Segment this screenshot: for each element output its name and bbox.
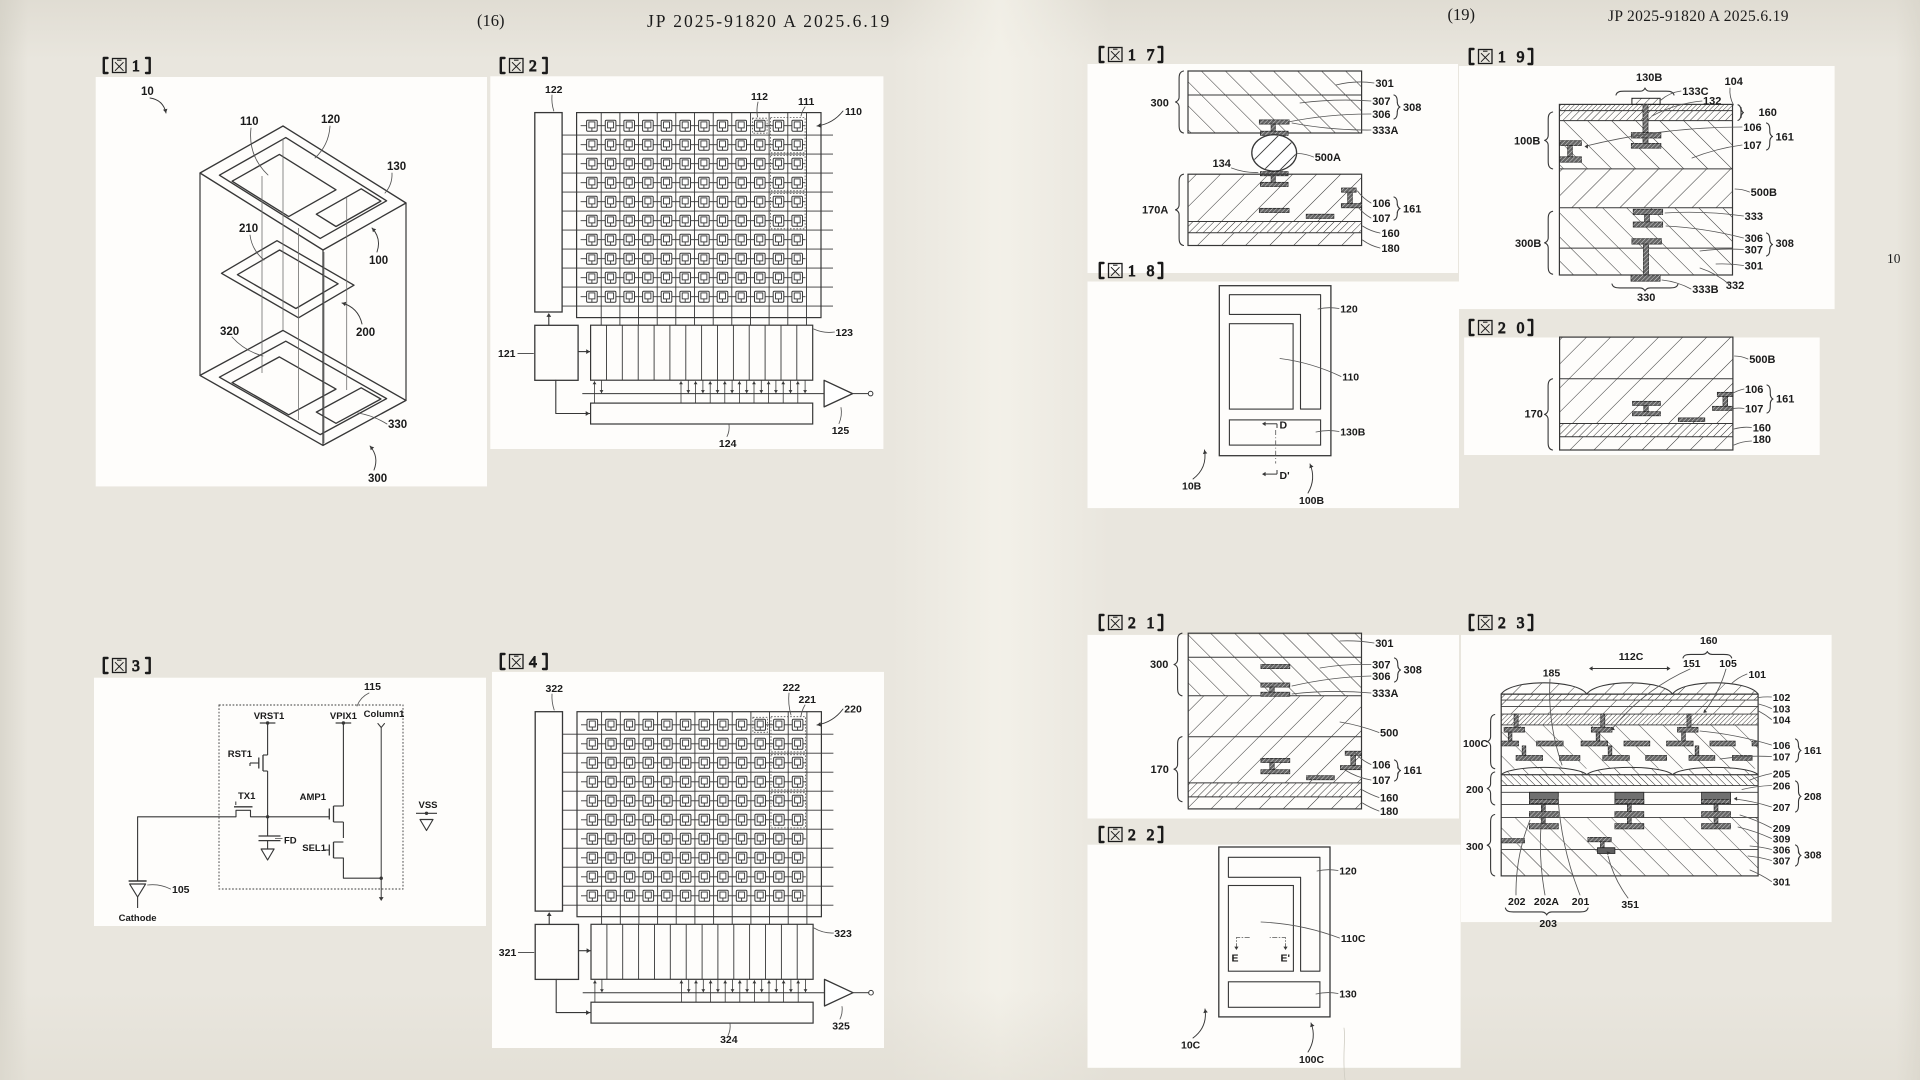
svg-text:100B: 100B bbox=[1514, 136, 1540, 148]
svg-text:301: 301 bbox=[1745, 261, 1763, 273]
svg-text:320: 320 bbox=[220, 326, 239, 338]
svg-text:322: 322 bbox=[546, 683, 564, 695]
svg-text:4: 4 bbox=[529, 654, 540, 671]
svg-text:185: 185 bbox=[1543, 668, 1561, 680]
svg-text:301: 301 bbox=[1773, 877, 1791, 889]
svg-text:2 1: 2 1 bbox=[1128, 615, 1158, 632]
svg-text:1 7: 1 7 bbox=[1128, 47, 1158, 64]
svg-text:200: 200 bbox=[356, 327, 375, 339]
svg-text:203: 203 bbox=[1539, 918, 1557, 930]
svg-text:300: 300 bbox=[1151, 98, 1169, 110]
svg-text:210: 210 bbox=[239, 223, 258, 235]
svg-text:2 0: 2 0 bbox=[1498, 320, 1528, 337]
svg-text:10C: 10C bbox=[1181, 1040, 1201, 1052]
svg-text:308: 308 bbox=[1804, 850, 1822, 862]
svg-text:201: 201 bbox=[1572, 896, 1590, 908]
svg-text:306: 306 bbox=[1745, 233, 1763, 245]
svg-text:(16): (16) bbox=[477, 11, 505, 30]
svg-text:106: 106 bbox=[1743, 122, 1761, 134]
svg-text:Column1: Column1 bbox=[364, 709, 405, 720]
svg-text:300: 300 bbox=[1466, 841, 1484, 853]
svg-text:161: 161 bbox=[1403, 204, 1421, 216]
svg-text:307: 307 bbox=[1372, 96, 1390, 108]
svg-text:321: 321 bbox=[499, 947, 517, 959]
svg-text:200: 200 bbox=[1466, 784, 1484, 796]
svg-text:10B: 10B bbox=[1182, 481, 1202, 493]
svg-text:110: 110 bbox=[240, 116, 259, 128]
svg-text:170: 170 bbox=[1151, 764, 1169, 776]
svg-text:130B: 130B bbox=[1636, 72, 1662, 84]
svg-text:180: 180 bbox=[1753, 434, 1771, 446]
svg-text:1 8: 1 8 bbox=[1128, 263, 1158, 280]
svg-text:333B: 333B bbox=[1692, 284, 1718, 296]
svg-text:160: 160 bbox=[1380, 793, 1398, 805]
svg-text:106: 106 bbox=[1745, 384, 1763, 396]
svg-text:102: 102 bbox=[1773, 692, 1791, 704]
svg-text:330: 330 bbox=[388, 419, 407, 431]
svg-text:Cathode: Cathode bbox=[119, 913, 157, 924]
svg-text:2 2: 2 2 bbox=[1128, 827, 1158, 844]
svg-text:100C: 100C bbox=[1299, 1054, 1325, 1066]
svg-text:220: 220 bbox=[844, 704, 862, 716]
svg-text:301: 301 bbox=[1375, 78, 1393, 90]
svg-text:300: 300 bbox=[368, 473, 387, 485]
svg-text:107: 107 bbox=[1745, 404, 1763, 416]
svg-text:306: 306 bbox=[1372, 671, 1390, 683]
svg-text:FD: FD bbox=[284, 836, 297, 847]
svg-text:500: 500 bbox=[1380, 728, 1398, 740]
svg-text:111: 111 bbox=[798, 96, 815, 108]
svg-text:120: 120 bbox=[1340, 304, 1358, 316]
svg-text:222: 222 bbox=[783, 682, 801, 694]
svg-text:125: 125 bbox=[832, 425, 850, 437]
svg-text:160: 160 bbox=[1381, 228, 1399, 240]
svg-text:1 9: 1 9 bbox=[1498, 49, 1528, 66]
svg-text:351: 351 bbox=[1621, 899, 1639, 911]
svg-text:122: 122 bbox=[545, 84, 563, 96]
svg-text:205: 205 bbox=[1773, 769, 1791, 781]
svg-text:161: 161 bbox=[1776, 132, 1794, 144]
svg-text:112C: 112C bbox=[1619, 651, 1644, 663]
svg-text:330: 330 bbox=[1637, 292, 1655, 304]
svg-text:160: 160 bbox=[1759, 107, 1777, 119]
svg-text:120: 120 bbox=[1339, 866, 1357, 878]
svg-text:300B: 300B bbox=[1515, 238, 1541, 250]
svg-text:323: 323 bbox=[834, 928, 852, 940]
svg-text:120: 120 bbox=[321, 114, 340, 126]
svg-text:333: 333 bbox=[1745, 211, 1763, 223]
svg-text:301: 301 bbox=[1375, 638, 1393, 650]
svg-text:112: 112 bbox=[751, 91, 768, 103]
svg-text:332: 332 bbox=[1726, 280, 1744, 292]
svg-text:110C: 110C bbox=[1341, 933, 1366, 945]
svg-text:RST1: RST1 bbox=[228, 749, 253, 760]
svg-text:AMP1: AMP1 bbox=[300, 792, 327, 803]
svg-text:1: 1 bbox=[132, 58, 143, 75]
svg-text:202A: 202A bbox=[1534, 896, 1560, 908]
svg-text:500B: 500B bbox=[1751, 187, 1777, 199]
svg-text:104: 104 bbox=[1725, 76, 1744, 88]
svg-text:180: 180 bbox=[1381, 243, 1399, 255]
svg-text:JP 2025-91820 A 2025.6.19: JP 2025-91820 A 2025.6.19 bbox=[1608, 8, 1789, 25]
svg-text:206: 206 bbox=[1773, 781, 1791, 793]
svg-text:161: 161 bbox=[1804, 745, 1822, 757]
svg-text:300: 300 bbox=[1150, 659, 1168, 671]
svg-text:115: 115 bbox=[364, 681, 381, 693]
svg-text:105: 105 bbox=[1719, 658, 1737, 670]
svg-text:106: 106 bbox=[1372, 198, 1390, 210]
svg-text:130B: 130B bbox=[1340, 427, 1366, 439]
svg-text:E': E' bbox=[1281, 953, 1291, 965]
svg-text:221: 221 bbox=[799, 694, 817, 706]
svg-text:JP 2025-91820 A 2025.6.19: JP 2025-91820 A 2025.6.19 bbox=[647, 11, 891, 31]
svg-text:105: 105 bbox=[172, 884, 190, 896]
svg-text:124: 124 bbox=[719, 438, 737, 450]
svg-text:106: 106 bbox=[1773, 740, 1791, 752]
svg-text:D: D bbox=[1280, 420, 1288, 432]
svg-text:TX1: TX1 bbox=[238, 791, 256, 802]
svg-text:500B: 500B bbox=[1749, 354, 1775, 366]
svg-text:130: 130 bbox=[387, 161, 406, 173]
svg-text:325: 325 bbox=[832, 1021, 850, 1033]
svg-text:101: 101 bbox=[1749, 669, 1767, 681]
svg-text:161: 161 bbox=[1404, 765, 1422, 777]
svg-text:160: 160 bbox=[1753, 423, 1771, 435]
svg-text:110: 110 bbox=[845, 106, 862, 118]
svg-text:(19): (19) bbox=[1448, 5, 1476, 24]
svg-text:500A: 500A bbox=[1315, 152, 1341, 164]
svg-text:307: 307 bbox=[1773, 856, 1791, 868]
svg-text:307: 307 bbox=[1745, 245, 1763, 257]
svg-text:306: 306 bbox=[1372, 109, 1390, 121]
svg-text:170: 170 bbox=[1525, 409, 1543, 421]
svg-text:SEL1: SEL1 bbox=[302, 843, 326, 854]
svg-text:107: 107 bbox=[1372, 213, 1390, 225]
svg-text:132: 132 bbox=[1703, 96, 1721, 108]
svg-text:207: 207 bbox=[1773, 802, 1791, 814]
svg-text:E: E bbox=[1232, 953, 1239, 965]
svg-text:D': D' bbox=[1280, 470, 1290, 482]
svg-text:202: 202 bbox=[1508, 896, 1526, 908]
svg-text:104: 104 bbox=[1773, 715, 1791, 727]
svg-text:VPIX1: VPIX1 bbox=[330, 711, 358, 722]
svg-text:130: 130 bbox=[1339, 989, 1357, 1001]
svg-text:100: 100 bbox=[369, 255, 388, 267]
svg-text:307: 307 bbox=[1372, 660, 1390, 672]
svg-text:333A: 333A bbox=[1372, 125, 1398, 137]
svg-text:123: 123 bbox=[836, 327, 854, 339]
svg-text:151: 151 bbox=[1683, 658, 1701, 670]
svg-text:180: 180 bbox=[1380, 806, 1398, 818]
svg-text:100C: 100C bbox=[1463, 738, 1489, 750]
svg-text:308: 308 bbox=[1403, 102, 1421, 114]
svg-text:VSS: VSS bbox=[418, 800, 437, 811]
svg-text:121: 121 bbox=[498, 348, 516, 360]
svg-text:2: 2 bbox=[529, 58, 540, 75]
svg-text:100B: 100B bbox=[1299, 495, 1325, 507]
svg-text:107: 107 bbox=[1743, 140, 1761, 152]
svg-text:208: 208 bbox=[1804, 791, 1822, 803]
svg-text:110: 110 bbox=[1342, 372, 1359, 384]
svg-text:107: 107 bbox=[1773, 752, 1791, 764]
svg-text:134: 134 bbox=[1213, 158, 1232, 170]
svg-text:160: 160 bbox=[1700, 635, 1718, 647]
svg-text:VRST1: VRST1 bbox=[254, 711, 285, 722]
svg-text:10: 10 bbox=[141, 86, 154, 98]
svg-text:3: 3 bbox=[132, 658, 143, 675]
svg-text:2 3: 2 3 bbox=[1498, 615, 1528, 632]
svg-text:324: 324 bbox=[720, 1034, 738, 1046]
svg-text:170A: 170A bbox=[1142, 205, 1168, 217]
svg-text:107: 107 bbox=[1372, 775, 1390, 787]
svg-text:308: 308 bbox=[1404, 665, 1422, 677]
svg-text:333A: 333A bbox=[1372, 688, 1398, 700]
svg-text:106: 106 bbox=[1372, 760, 1390, 772]
svg-text:308: 308 bbox=[1776, 238, 1794, 250]
svg-text:161: 161 bbox=[1776, 394, 1794, 406]
